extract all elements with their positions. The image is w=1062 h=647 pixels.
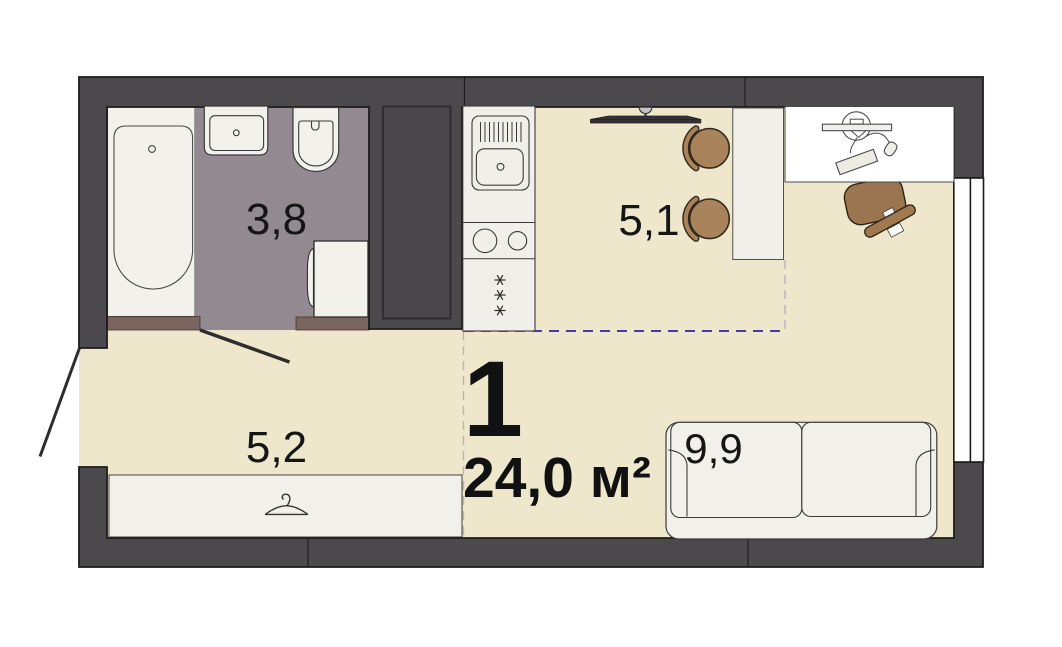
svg-text:24,0 м²: 24,0 м² [463, 446, 651, 510]
svg-text:3,8: 3,8 [246, 195, 307, 244]
svg-text:9,9: 9,9 [684, 425, 742, 472]
svg-text:5,2: 5,2 [246, 423, 307, 472]
svg-text:5,1: 5,1 [618, 196, 679, 245]
svg-text:1: 1 [463, 338, 523, 459]
